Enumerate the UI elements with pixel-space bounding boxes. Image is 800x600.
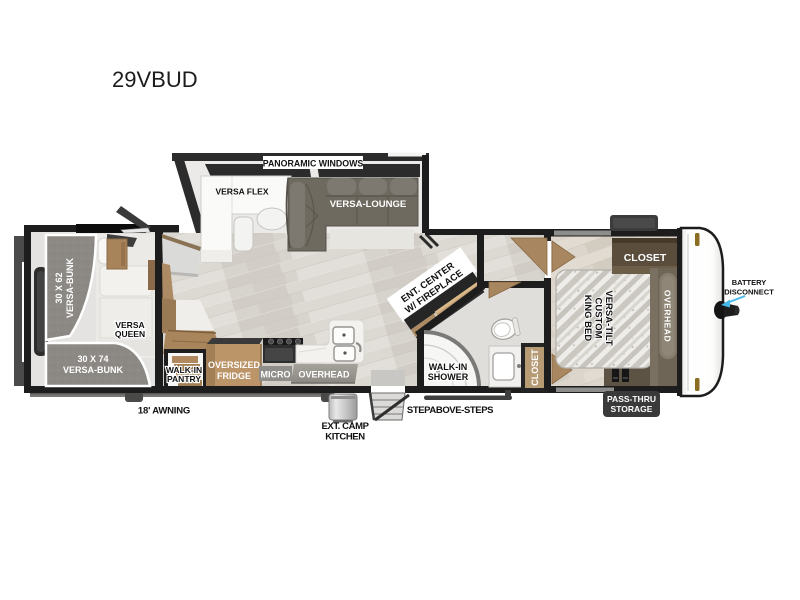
svg-text:18' AWNING: 18' AWNING xyxy=(138,406,190,417)
svg-text:EXT. CAMP: EXT. CAMP xyxy=(321,421,369,432)
svg-text:PANORAMIC WINDOWS: PANORAMIC WINDOWS xyxy=(263,159,364,169)
svg-text:MICRO: MICRO xyxy=(261,370,291,380)
svg-text:30 X 62: 30 X 62 xyxy=(54,272,64,303)
svg-text:QUEEN: QUEEN xyxy=(115,329,145,339)
svg-text:OVERSIZED: OVERSIZED xyxy=(208,360,261,370)
svg-text:CUSTOM: CUSTOM xyxy=(593,298,604,339)
svg-text:DISCONNECT: DISCONNECT xyxy=(724,288,774,297)
svg-text:VERSA-TILT: VERSA-TILT xyxy=(603,290,614,345)
svg-text:SHOWER: SHOWER xyxy=(428,372,469,382)
svg-text:30 X 74: 30 X 74 xyxy=(77,354,108,364)
svg-text:VERSA-BUNK: VERSA-BUNK xyxy=(65,258,75,319)
svg-text:PASS-THRU: PASS-THRU xyxy=(607,394,656,404)
svg-text:KITCHEN: KITCHEN xyxy=(325,432,365,443)
svg-text:STEPABOVE-STEPS: STEPABOVE-STEPS xyxy=(407,405,493,416)
svg-text:FRIDGE: FRIDGE xyxy=(217,371,251,381)
svg-text:STORAGE: STORAGE xyxy=(611,404,653,414)
svg-text:29VBUD: 29VBUD xyxy=(112,67,198,92)
svg-text:CLOSET: CLOSET xyxy=(530,349,540,386)
svg-text:OVERHEAD: OVERHEAD xyxy=(663,290,673,342)
svg-text:KING BED: KING BED xyxy=(582,295,593,342)
svg-text:WALK-IN: WALK-IN xyxy=(429,362,468,372)
svg-text:PANTRY: PANTRY xyxy=(167,374,201,384)
svg-text:VERSA FLEX: VERSA FLEX xyxy=(215,187,268,197)
svg-text:OVERHEAD: OVERHEAD xyxy=(298,370,350,380)
svg-text:VERSA-BUNK: VERSA-BUNK xyxy=(63,365,124,375)
svg-text:VERSA-LOUNGE: VERSA-LOUNGE xyxy=(330,199,407,210)
svg-text:BATTERY: BATTERY xyxy=(732,278,767,287)
svg-text:CLOSET: CLOSET xyxy=(624,252,667,264)
